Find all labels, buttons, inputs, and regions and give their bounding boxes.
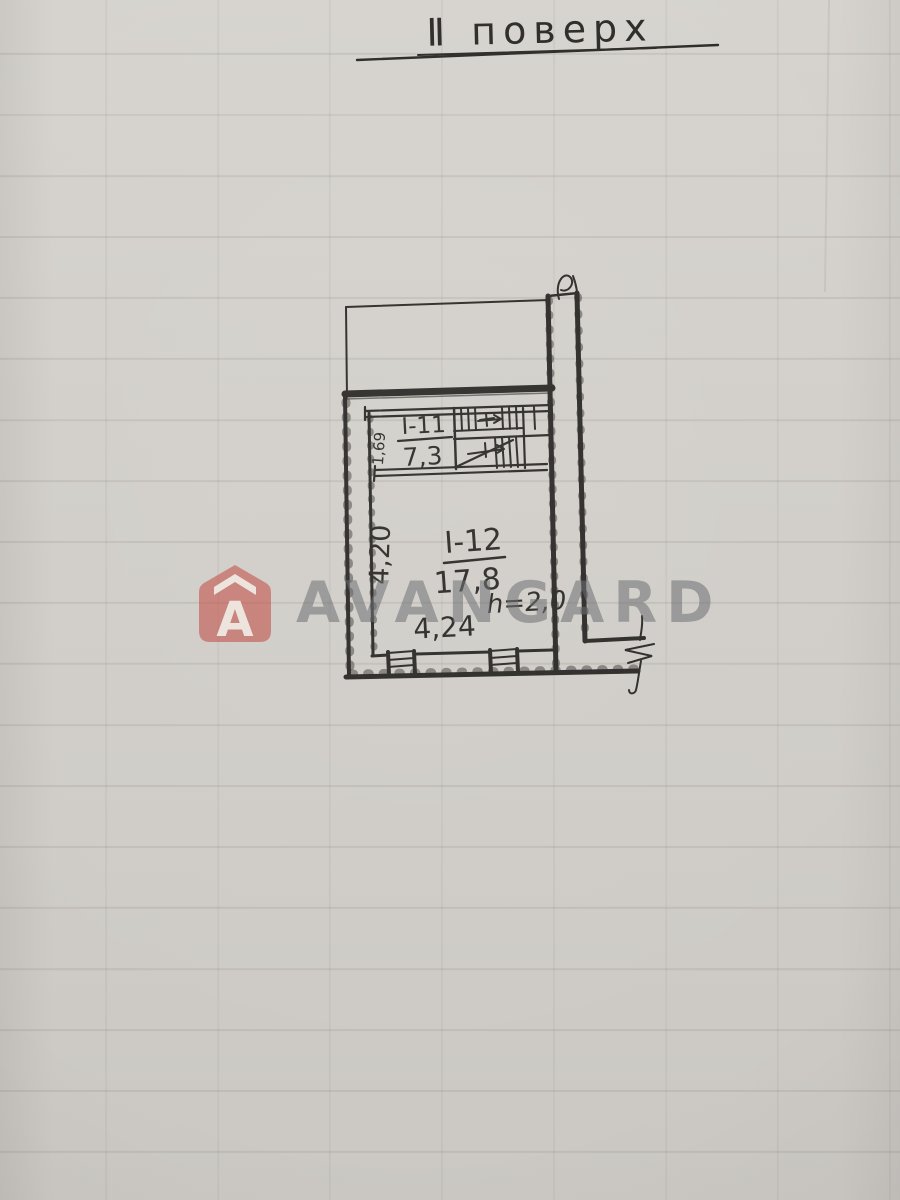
- photo-vignette: [0, 0, 900, 1200]
- scanned-floorplan-photo: Ⅱ поверх: [0, 0, 900, 1200]
